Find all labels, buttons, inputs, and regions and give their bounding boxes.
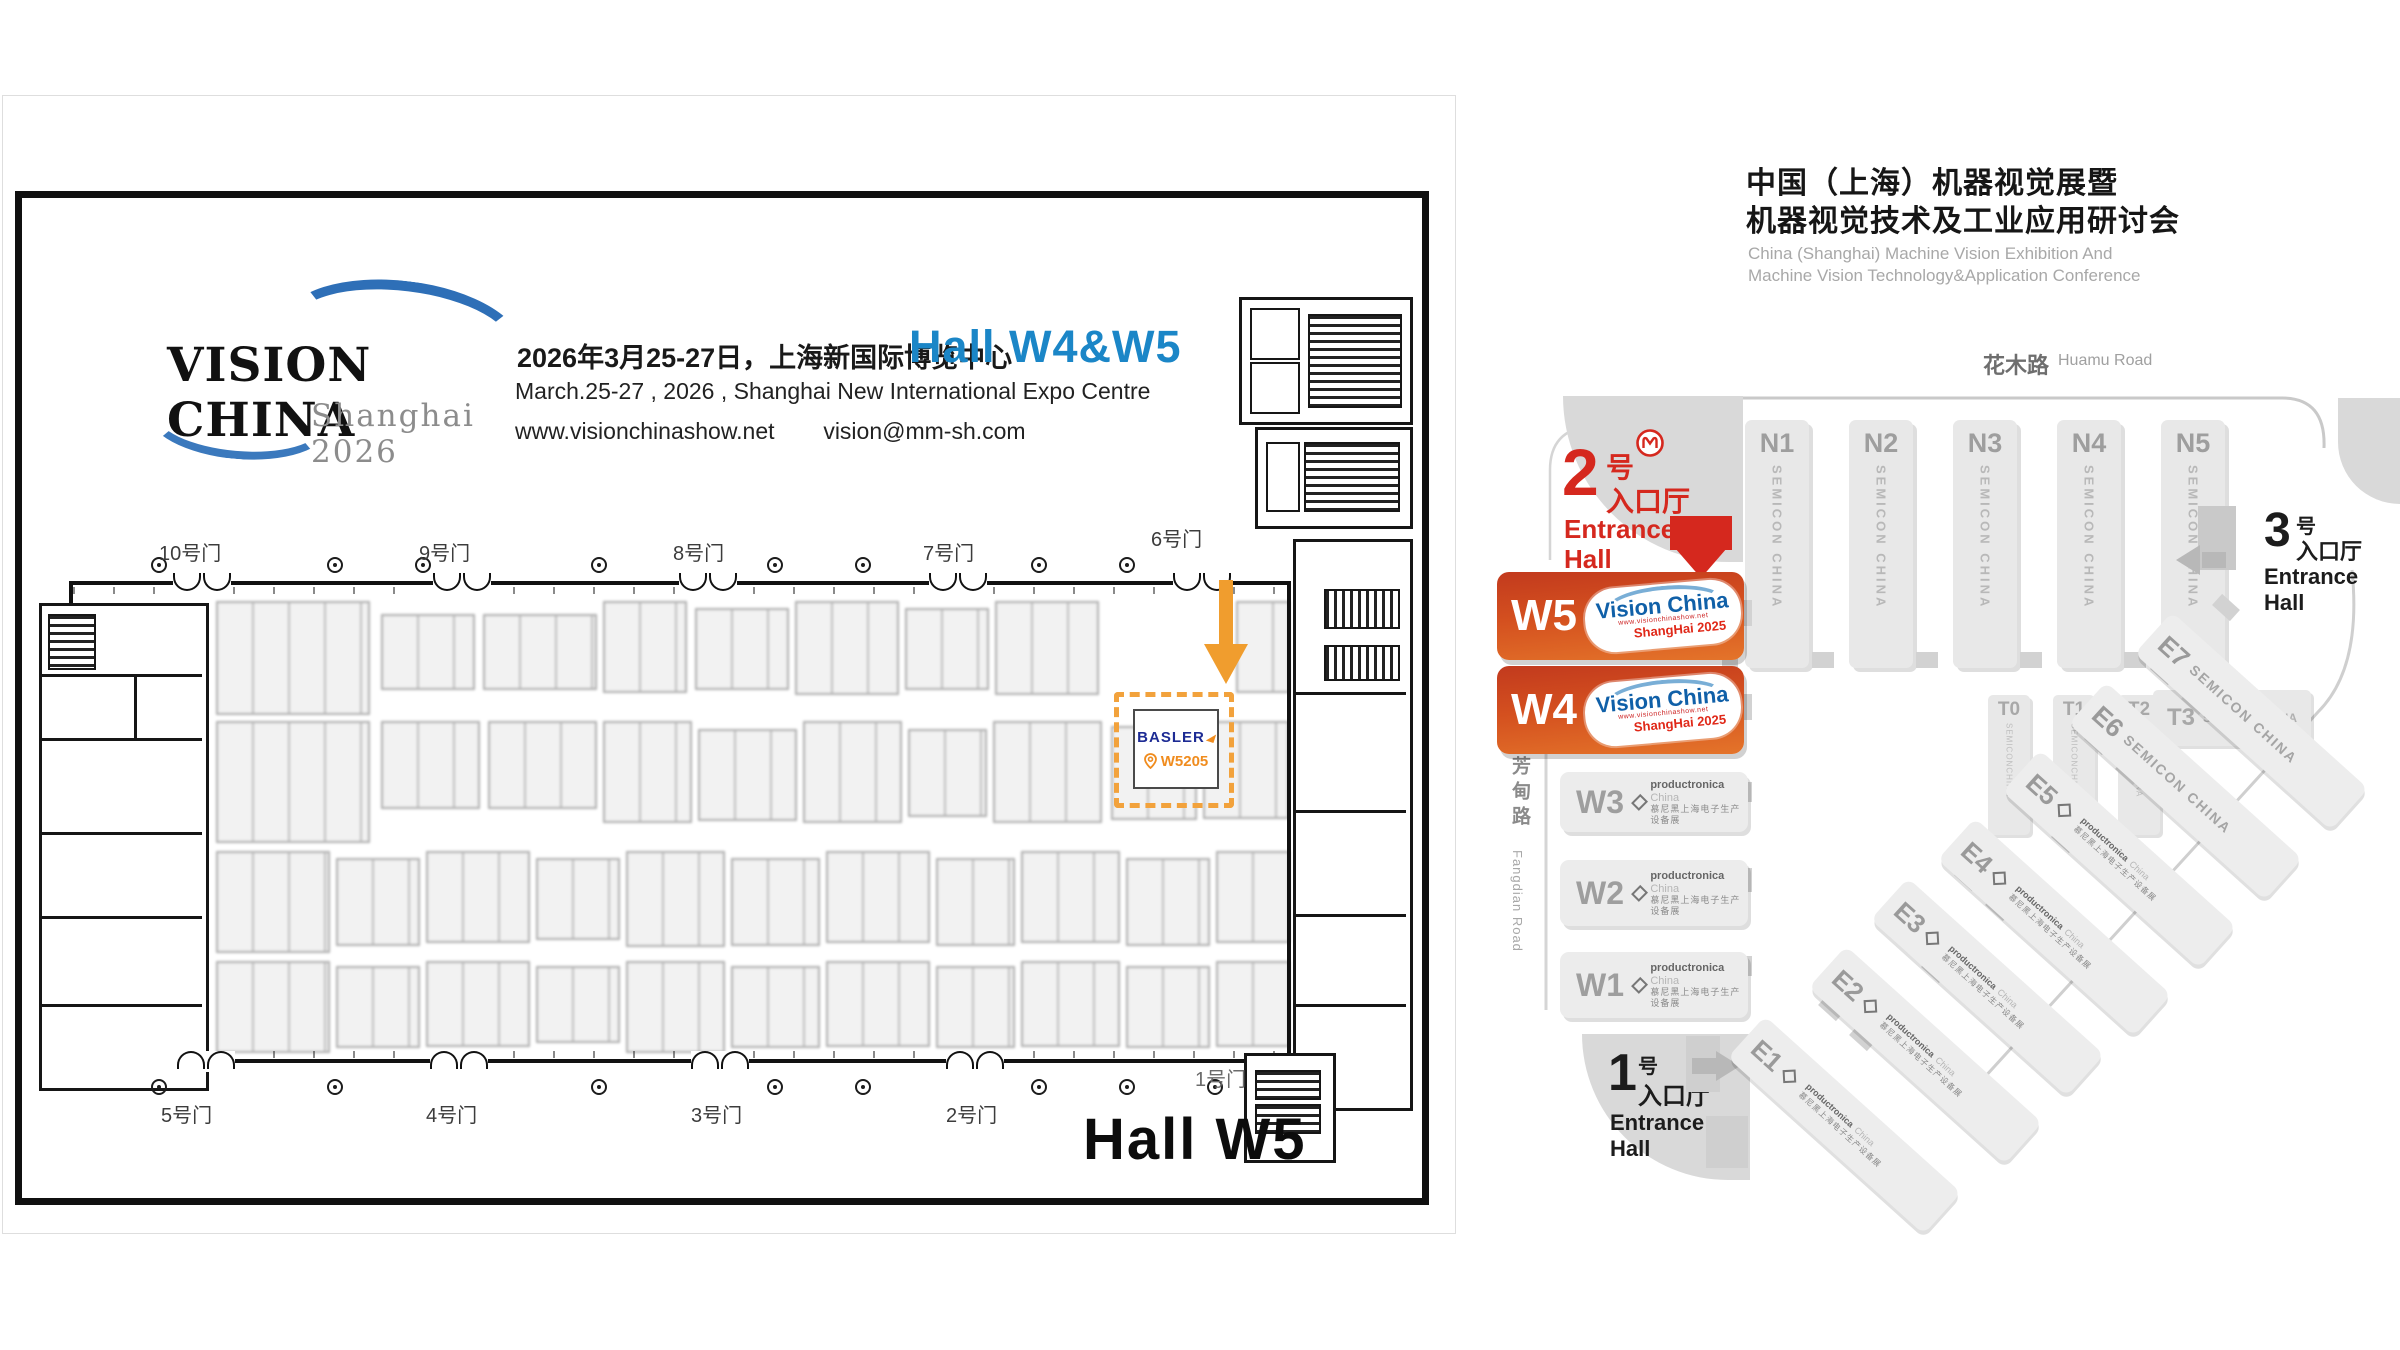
hall-w5-plan-panel: VISION CHINA Shanghai 2026 2026年3月25-27日… [2, 95, 1456, 1234]
hall-tag: SEMICON CHINA [2082, 465, 2097, 609]
column-marker [1031, 1079, 1047, 1095]
hall-label: W4 [1511, 685, 1577, 735]
huamu-road-en: Huamu Road [2058, 352, 2152, 370]
hall-label: N4 [2057, 428, 2121, 459]
gate-label-4: 4号门 [426, 1099, 477, 1128]
column-marker [327, 1079, 343, 1095]
wall-ticks-bottom [73, 1051, 1287, 1058]
prod-brand: productronica [1650, 779, 1724, 791]
annex-building-mid [1255, 427, 1413, 529]
booth-block [1021, 851, 1120, 943]
hall-w3: W3 productronica China 慕尼黑上海电子生产设备展 [1560, 772, 1748, 832]
hall-wall-right [1287, 581, 1291, 1063]
hall-connector [2020, 652, 2042, 668]
door-gate [691, 1051, 749, 1072]
column-marker [151, 1079, 167, 1095]
room [42, 916, 202, 919]
hall-w1: W1 productronica China 慕尼黑上海电子生产设备展 [1560, 952, 1748, 1018]
service-column-right [1293, 539, 1413, 1111]
gray-arrow-left-icon [2176, 545, 2200, 575]
gray-arrow-shaft [2202, 552, 2226, 568]
seating-rows [1308, 314, 1402, 408]
hall-tag: SEMICON CHINA [1770, 465, 1785, 609]
vision-china-2025-logo: Vision China www.visionchinashow.net Sha… [1583, 577, 1744, 654]
entrance-en2: Hall [2264, 590, 2304, 616]
hall-t0: T0 SEMICONCHINA [1988, 695, 2030, 835]
productronica-logo-icon [1864, 999, 1878, 1013]
hall-tag: SEMICON CHINA [1874, 465, 1889, 609]
room [42, 832, 202, 835]
column-marker [767, 557, 783, 573]
hall-w4: W4 Vision China www.visionchinashow.net … [1497, 666, 1744, 754]
hall-name-label: Hall W5 [1083, 1106, 1307, 1173]
annex-building-top [1239, 297, 1413, 425]
column-marker [591, 1079, 607, 1095]
hall-label: E7 [2152, 629, 2196, 673]
fangdian-road-en: Fangdian Road [1510, 850, 1525, 952]
floorplan-page: VISION CHINA Shanghai 2026 2026年3月25-27日… [0, 0, 2400, 1350]
booth-block [603, 601, 687, 693]
booth-block [603, 721, 692, 823]
booth-arrow-icon [1204, 644, 1248, 684]
room-divider [134, 674, 137, 738]
hall-n3: N3 SEMICON CHINA [1953, 420, 2017, 668]
booth-block [826, 961, 930, 1047]
booth-block [731, 966, 820, 1048]
gray-arrow-shaft [1692, 1058, 1716, 1074]
booth-block [908, 729, 987, 817]
productronica-logo-icon [1783, 1069, 1797, 1083]
hall-label: N3 [1953, 428, 2017, 459]
booth-block [216, 721, 370, 843]
room [1250, 308, 1300, 360]
basler-logo-mark-icon [1206, 731, 1216, 742]
booth-block [936, 966, 1015, 1048]
gate-label-7: 7号门 [923, 537, 974, 566]
productronica-logo-icon [1631, 976, 1648, 993]
entrance-number: 1 [1608, 1048, 1637, 1098]
booth-block [336, 858, 420, 946]
productronica-logo-icon [1926, 931, 1940, 945]
productronica-logo-icon [1631, 884, 1648, 901]
door-gate [946, 1051, 1004, 1072]
booth-highlight-box: BASLER W5205 [1114, 692, 1234, 808]
door-gate [177, 1051, 235, 1072]
door-gate [433, 573, 491, 594]
door-gate [929, 573, 987, 594]
hall-n2: N2 SEMICON CHINA [1849, 420, 1913, 668]
gate-label-3: 3号门 [691, 1099, 742, 1128]
room [42, 674, 202, 677]
prod-region: China [1650, 792, 1679, 804]
room [1296, 914, 1406, 917]
hall-wall-bottom [69, 1059, 1291, 1063]
booth-block [626, 961, 725, 1053]
hall-w5: W5 Vision China www.visionchinashow.net … [1497, 572, 1744, 660]
seating-rows [1304, 442, 1400, 512]
hall-label: W3 [1576, 784, 1624, 821]
entrance-en1: Entrance [1610, 1110, 1704, 1136]
booth-arrow-icon [1219, 580, 1233, 646]
booth-block [1216, 851, 1290, 943]
column-marker [767, 1079, 783, 1095]
booth-block [381, 721, 480, 809]
entrance-en2: Hall [1610, 1136, 1650, 1162]
booth-basler: BASLER W5205 [1133, 709, 1219, 789]
annex-left [39, 603, 209, 1091]
fangdian-road-cn: 芳甸路 [1506, 756, 1533, 831]
booth-block [698, 729, 797, 821]
productronica-logo-icon [1631, 793, 1648, 810]
booth-block [216, 851, 330, 953]
hall-label: W1 [1576, 967, 1624, 1004]
booth-block [995, 601, 1099, 695]
column-marker [1119, 557, 1135, 573]
booth-block [1216, 961, 1290, 1047]
booth-block [216, 961, 330, 1053]
door-gate [430, 1051, 488, 1072]
room [42, 1004, 202, 1007]
hall-n1: N1 SEMICON CHINA [1745, 420, 1809, 668]
booth-block [488, 721, 597, 809]
prod-cn: 慕尼黑上海电子生产设备展 [1650, 804, 1748, 826]
room [1250, 362, 1300, 414]
entrance2-gate [1670, 516, 1732, 550]
productronica-logo-icon [1993, 871, 2007, 885]
booth-block [626, 851, 725, 947]
booth-block [795, 601, 899, 695]
prod-cn: 慕尼黑上海电子生产设备展 [1650, 895, 1748, 917]
gate-label-5: 5号门 [161, 1099, 212, 1128]
booth-block [1021, 961, 1120, 1047]
hall-connector [1916, 652, 1938, 668]
column-marker [855, 557, 871, 573]
hall-tag: SEMICON CHINA [1978, 465, 1993, 609]
prod-brand: productronica [1650, 870, 1724, 882]
entrance-number: 3 [2264, 508, 2291, 554]
prod-brand: productronica [1650, 962, 1724, 974]
booth-block [695, 608, 789, 690]
expo-overview-map: 中国（上海）机器视觉展暨 机器视觉技术及工业应用研讨会 China (Shang… [1450, 0, 2400, 1350]
room [1296, 692, 1406, 695]
location-pin-icon [1144, 753, 1157, 769]
booth-block [536, 966, 620, 1043]
column-marker [591, 557, 607, 573]
hall-label: N5 [2161, 428, 2225, 459]
room [42, 738, 202, 741]
prod-cn: 慕尼黑上海电子生产设备展 [1650, 987, 1748, 1009]
door-gate [173, 573, 231, 594]
booth-block [426, 851, 530, 943]
huamu-road-cn: 花木路 [1983, 348, 2049, 380]
booth-block [536, 858, 620, 940]
stairs [1324, 589, 1400, 629]
booth-block [1126, 858, 1210, 946]
hall-label: E6 [2086, 699, 2130, 743]
metro-icon [1635, 428, 1665, 458]
booth-block [336, 966, 420, 1048]
room [1296, 1004, 1406, 1007]
stairs [1324, 645, 1400, 681]
prod-region: China [1650, 883, 1679, 895]
gate-label-8: 8号门 [673, 537, 724, 566]
entrance-hao: 号 [1638, 1050, 1658, 1079]
booth-block [483, 614, 597, 690]
column-marker [327, 557, 343, 573]
column-marker [1119, 1079, 1135, 1095]
productronica-logo-icon [2058, 803, 2072, 817]
basler-brand: BASLER [1137, 729, 1205, 746]
booth-number: W5205 [1161, 753, 1209, 770]
hall-label: W5 [1511, 591, 1577, 641]
booth-block [1126, 966, 1210, 1048]
door-gate [679, 573, 737, 594]
column-marker [1031, 557, 1047, 573]
hall-label: N1 [1745, 428, 1809, 459]
vision-china-2025-logo: Vision China www.visionchinashow.net Sha… [1583, 671, 1744, 748]
entrance-en1: Entrance [1564, 514, 1675, 545]
gate-label-9: 9号门 [419, 537, 470, 566]
gate-label-1: 1号门 [1195, 1063, 1246, 1092]
booth-block [936, 858, 1015, 946]
column-marker [855, 1079, 871, 1095]
entrance-en2: Hall [1564, 544, 1612, 575]
gate-label-10: 10号门 [159, 537, 221, 566]
gate-label-6: 6号门 [1151, 523, 1202, 552]
hall-label: T0 [1988, 699, 2030, 721]
hall-connector [1812, 652, 1834, 668]
hall-n4: N4 SEMICON CHINA [2057, 420, 2121, 668]
booth-block [426, 961, 530, 1047]
entrance-en1: Entrance [2264, 564, 2358, 590]
booth-block [803, 721, 902, 823]
prod-region: China [1650, 975, 1679, 987]
entrance-lobby: 入口厅 [2296, 534, 2362, 566]
booth-block [381, 614, 475, 690]
stairs [1255, 1070, 1321, 1100]
entrance-number: 2 [1562, 440, 1599, 504]
room [1266, 442, 1300, 512]
booth-block [731, 858, 820, 946]
hall-label: N2 [1849, 428, 1913, 459]
hall-w2: W2 productronica China 慕尼黑上海电子生产设备展 [1560, 860, 1748, 926]
booth-block [905, 608, 989, 690]
gate-label-2: 2号门 [946, 1099, 997, 1128]
booth-block [826, 851, 930, 943]
room [1296, 810, 1406, 813]
gate-block [1706, 1116, 1748, 1168]
booth-block [993, 721, 1102, 823]
hall-label: W2 [1576, 875, 1624, 912]
booth-block [216, 601, 370, 715]
stairs [48, 614, 96, 670]
